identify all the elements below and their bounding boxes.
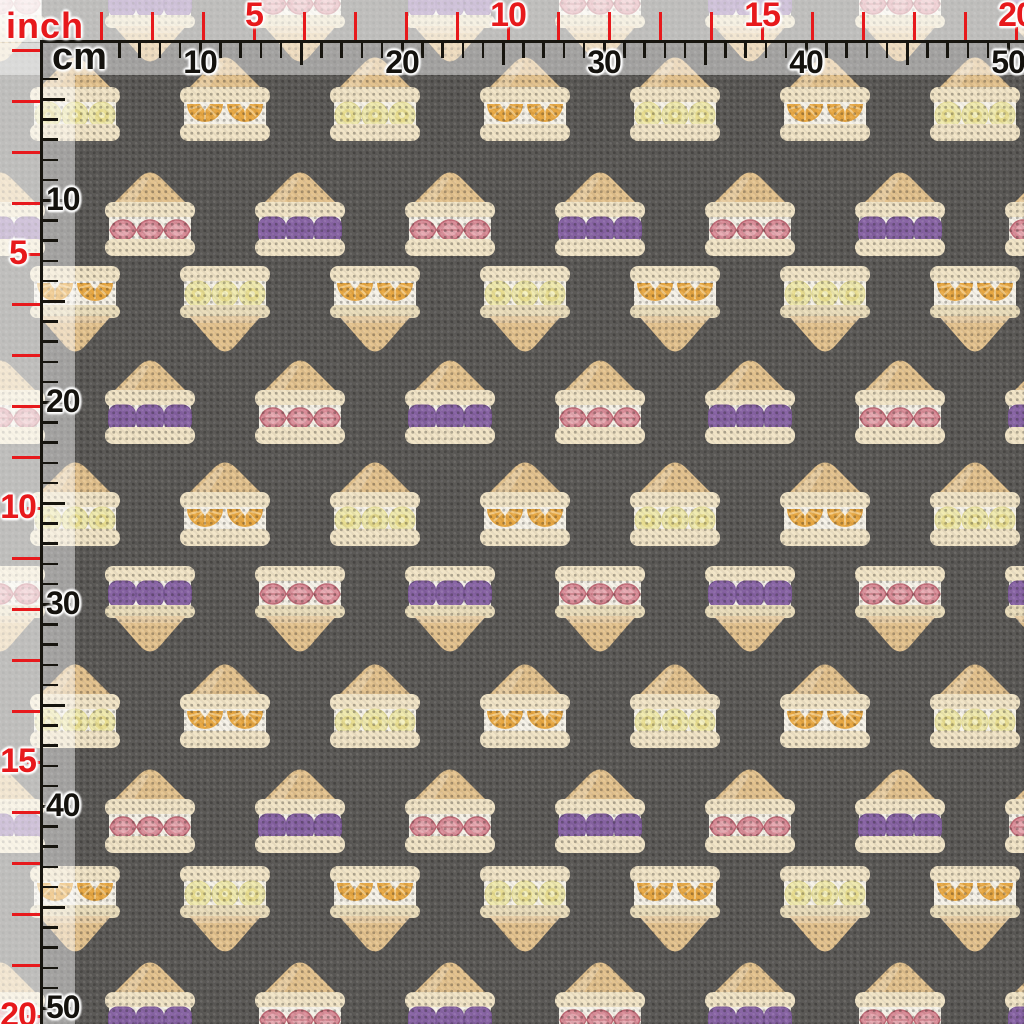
sandwich-banana-up xyxy=(629,55,721,142)
left-inch-number: 10 xyxy=(0,490,36,524)
top-cm-number: 20 xyxy=(385,46,419,78)
sandwich-strawberry-up xyxy=(704,170,796,257)
sandwich-banana-up xyxy=(629,460,721,547)
top-inch-tick xyxy=(202,12,205,40)
left-inch-tick xyxy=(12,303,40,306)
left-cm-tick xyxy=(43,159,58,162)
left-cm-tick xyxy=(43,441,58,444)
left-inch-number: 20 xyxy=(0,998,36,1024)
top-cm-tick xyxy=(219,43,222,58)
top-cm-tick xyxy=(946,43,949,58)
sandwich-grape-down xyxy=(404,565,496,657)
sandwich-grape-up xyxy=(704,358,796,445)
sandwich-banana-up xyxy=(929,662,1021,749)
top-cm-tick xyxy=(704,43,707,65)
left-cm-tick xyxy=(43,967,58,970)
left-cm-tick xyxy=(43,280,58,283)
top-cm-tick xyxy=(502,43,505,65)
left-cm-tick xyxy=(43,765,58,768)
sandwich-banana-down xyxy=(779,865,871,957)
left-cm-tick xyxy=(43,462,58,465)
top-cm-tick xyxy=(684,43,687,58)
cm-ruler-baseline-horizontal xyxy=(40,40,1024,43)
sandwich-grape-up xyxy=(554,767,646,854)
sandwich-strawberry-up xyxy=(404,767,496,854)
sandwich-grape-up xyxy=(254,767,346,854)
sandwich-orange-up xyxy=(779,662,871,749)
left-inch-tick xyxy=(12,151,40,154)
sandwich-orange-down xyxy=(329,865,421,957)
left-cm-tick xyxy=(43,704,65,707)
sandwich-banana-up xyxy=(329,662,421,749)
sandwich-grape-up xyxy=(704,960,796,1024)
sandwich-orange-up xyxy=(479,55,571,142)
left-cm-number: 10 xyxy=(46,183,80,215)
sandwich-orange-down xyxy=(929,265,1021,357)
top-cm-tick xyxy=(563,43,566,58)
left-cm-tick xyxy=(43,239,58,242)
left-cm-tick xyxy=(43,866,58,869)
sandwich-orange-down xyxy=(929,865,1021,957)
top-cm-number: 10 xyxy=(183,46,217,78)
left-cm-tick xyxy=(43,219,58,222)
top-cm-tick xyxy=(744,43,747,58)
sandwich-strawberry-down xyxy=(554,565,646,657)
fabric-preview: 5101520102030405051015201020304050 inch … xyxy=(0,0,1024,1024)
left-cm-tick xyxy=(43,926,58,929)
sandwich-grape-up xyxy=(854,170,946,257)
sandwich-grape-up xyxy=(854,767,946,854)
top-inch-number: 20 xyxy=(998,0,1024,32)
top-cm-tick xyxy=(260,43,263,58)
top-inch-number: 10 xyxy=(490,0,526,32)
top-cm-tick xyxy=(300,43,303,65)
sandwich-orange-down xyxy=(629,865,721,957)
sandwich-strawberry-up xyxy=(254,960,346,1024)
top-cm-tick xyxy=(340,43,343,58)
sandwich-orange-up xyxy=(179,662,271,749)
left-cm-tick xyxy=(43,138,58,141)
top-cm-tick xyxy=(906,43,909,65)
left-inch-tick xyxy=(12,913,40,916)
sandwich-strawberry-down xyxy=(254,565,346,657)
left-cm-tick xyxy=(43,724,58,727)
top-cm-tick xyxy=(825,43,828,58)
cm-ruler-label: cm xyxy=(52,38,107,76)
top-inch-tick xyxy=(557,12,560,40)
sandwich-grape-down xyxy=(704,565,796,657)
left-cm-tick xyxy=(43,664,58,667)
top-cm-tick xyxy=(926,43,929,58)
top-cm-number: 50 xyxy=(991,46,1024,78)
sandwich-strawberry-up xyxy=(404,170,496,257)
left-inch-tick xyxy=(12,100,40,103)
top-cm-tick xyxy=(138,43,141,58)
sandwich-strawberry-up xyxy=(104,170,196,257)
sandwich-orange-up xyxy=(779,460,871,547)
sandwich-strawberry-up xyxy=(554,960,646,1024)
sandwich-orange-up xyxy=(479,460,571,547)
top-cm-tick xyxy=(866,43,869,58)
top-cm-tick xyxy=(886,43,889,58)
left-cm-number: 40 xyxy=(46,789,80,821)
top-cm-number: 40 xyxy=(789,46,823,78)
sandwich-grape-up xyxy=(554,170,646,257)
left-cm-tick xyxy=(43,502,65,505)
top-cm-tick xyxy=(623,43,626,58)
top-inch-tick xyxy=(303,12,306,40)
left-inch-tick xyxy=(12,405,40,408)
left-cm-tick xyxy=(43,906,65,909)
left-cm-tick xyxy=(43,320,58,323)
left-cm-tick xyxy=(43,946,58,949)
left-inch-number: 15 xyxy=(0,744,36,778)
top-cm-tick xyxy=(320,43,323,58)
top-inch-tick xyxy=(151,12,154,40)
top-cm-tick xyxy=(583,43,586,58)
sandwich-grape-up xyxy=(404,358,496,445)
sandwich-banana-down xyxy=(179,265,271,357)
sandwich-grape-up xyxy=(254,170,346,257)
sandwich-grape-up xyxy=(1004,960,1024,1024)
left-cm-tick xyxy=(43,522,58,525)
left-cm-tick xyxy=(43,845,58,848)
left-inch-number: 5 xyxy=(0,236,36,270)
left-cm-tick xyxy=(43,643,58,646)
left-cm-tick xyxy=(43,78,58,81)
cm-ruler-baseline-vertical xyxy=(40,40,43,1024)
sandwich-grape-up xyxy=(1004,358,1024,445)
top-cm-tick xyxy=(987,43,990,58)
left-inch-tick xyxy=(12,964,40,967)
fabric-swatch xyxy=(0,0,1024,1024)
top-cm-tick xyxy=(643,43,646,58)
top-inch-tick xyxy=(862,12,865,40)
left-cm-tick xyxy=(43,260,58,263)
sandwich-strawberry-up xyxy=(554,358,646,445)
top-cm-tick xyxy=(482,43,485,58)
left-inch-tick xyxy=(12,202,40,205)
left-cm-number: 20 xyxy=(46,385,80,417)
top-cm-tick xyxy=(462,43,465,58)
left-inch-tick xyxy=(12,659,40,662)
sandwich-grape-down xyxy=(104,565,196,657)
left-inch-tick xyxy=(12,862,40,865)
top-cm-tick xyxy=(179,43,182,58)
sandwich-grape-up xyxy=(104,358,196,445)
sandwich-banana-down xyxy=(479,265,571,357)
top-inch-tick xyxy=(608,12,611,40)
left-inch-tick xyxy=(12,49,40,52)
left-cm-tick xyxy=(43,886,58,889)
top-inch-tick xyxy=(811,12,814,40)
top-inch-tick xyxy=(913,12,916,40)
left-cm-tick xyxy=(43,825,58,828)
left-inch-tick xyxy=(12,557,40,560)
sandwich-strawberry-up xyxy=(104,767,196,854)
sandwich-strawberry-up xyxy=(704,767,796,854)
left-cm-tick xyxy=(43,98,65,101)
sandwich-strawberry-up xyxy=(254,358,346,445)
top-inch-tick xyxy=(405,12,408,40)
top-inch-tick xyxy=(964,12,967,40)
left-cm-tick xyxy=(43,623,58,626)
sandwich-grape-down xyxy=(1004,565,1024,657)
top-cm-tick xyxy=(542,43,545,58)
top-inch-tick xyxy=(710,12,713,40)
left-cm-tick xyxy=(43,482,58,485)
sandwich-orange-down xyxy=(629,265,721,357)
left-cm-tick xyxy=(43,563,58,566)
left-cm-tick xyxy=(43,361,58,364)
left-cm-tick xyxy=(43,542,58,545)
top-inch-tick xyxy=(659,12,662,40)
top-cm-tick xyxy=(967,43,970,58)
top-inch-tick xyxy=(354,12,357,40)
left-cm-tick xyxy=(43,684,58,687)
top-cm-tick xyxy=(118,43,121,58)
sandwich-strawberry-up xyxy=(1004,767,1024,854)
top-cm-tick xyxy=(280,43,283,58)
sandwich-banana-up xyxy=(929,460,1021,547)
sandwich-strawberry-up xyxy=(1004,170,1024,257)
sandwich-banana-up xyxy=(329,460,421,547)
top-cm-tick xyxy=(421,43,424,58)
top-cm-tick xyxy=(381,43,384,58)
left-cm-number: 30 xyxy=(46,587,80,619)
top-cm-tick xyxy=(724,43,727,58)
top-cm-tick xyxy=(441,43,444,58)
top-cm-tick xyxy=(785,43,788,58)
top-cm-tick xyxy=(239,43,242,58)
top-cm-number: 30 xyxy=(587,46,621,78)
sandwich-strawberry-down xyxy=(854,565,946,657)
left-inch-tick xyxy=(12,811,40,814)
sandwich-grape-up xyxy=(104,960,196,1024)
left-inch-tick xyxy=(12,354,40,357)
left-cm-number: 50 xyxy=(46,991,80,1023)
sandwich-orange-up xyxy=(479,662,571,749)
left-cm-tick xyxy=(43,118,58,121)
top-cm-tick xyxy=(522,43,525,58)
left-cm-tick xyxy=(43,421,58,424)
left-cm-tick xyxy=(43,300,65,303)
left-inch-tick xyxy=(12,710,40,713)
top-cm-tick xyxy=(845,43,848,58)
top-cm-tick xyxy=(765,43,768,58)
sandwich-banana-down xyxy=(179,865,271,957)
top-inch-tick xyxy=(456,12,459,40)
sandwich-banana-down xyxy=(779,265,871,357)
left-inch-tick xyxy=(12,456,40,459)
sandwich-banana-up xyxy=(629,662,721,749)
top-cm-tick xyxy=(664,43,667,58)
sandwich-banana-down xyxy=(479,865,571,957)
sandwich-orange-up xyxy=(179,460,271,547)
top-cm-tick xyxy=(361,43,364,58)
sandwich-strawberry-up xyxy=(854,358,946,445)
fabric-pattern xyxy=(0,0,1024,1024)
left-inch-tick xyxy=(12,608,40,611)
top-inch-number: 15 xyxy=(744,0,780,32)
sandwich-orange-down xyxy=(329,265,421,357)
top-cm-tick xyxy=(159,43,162,58)
left-cm-tick xyxy=(43,744,58,747)
left-cm-tick xyxy=(43,340,58,343)
sandwich-grape-up xyxy=(404,960,496,1024)
top-inch-number: 5 xyxy=(245,0,263,32)
sandwich-strawberry-up xyxy=(854,960,946,1024)
